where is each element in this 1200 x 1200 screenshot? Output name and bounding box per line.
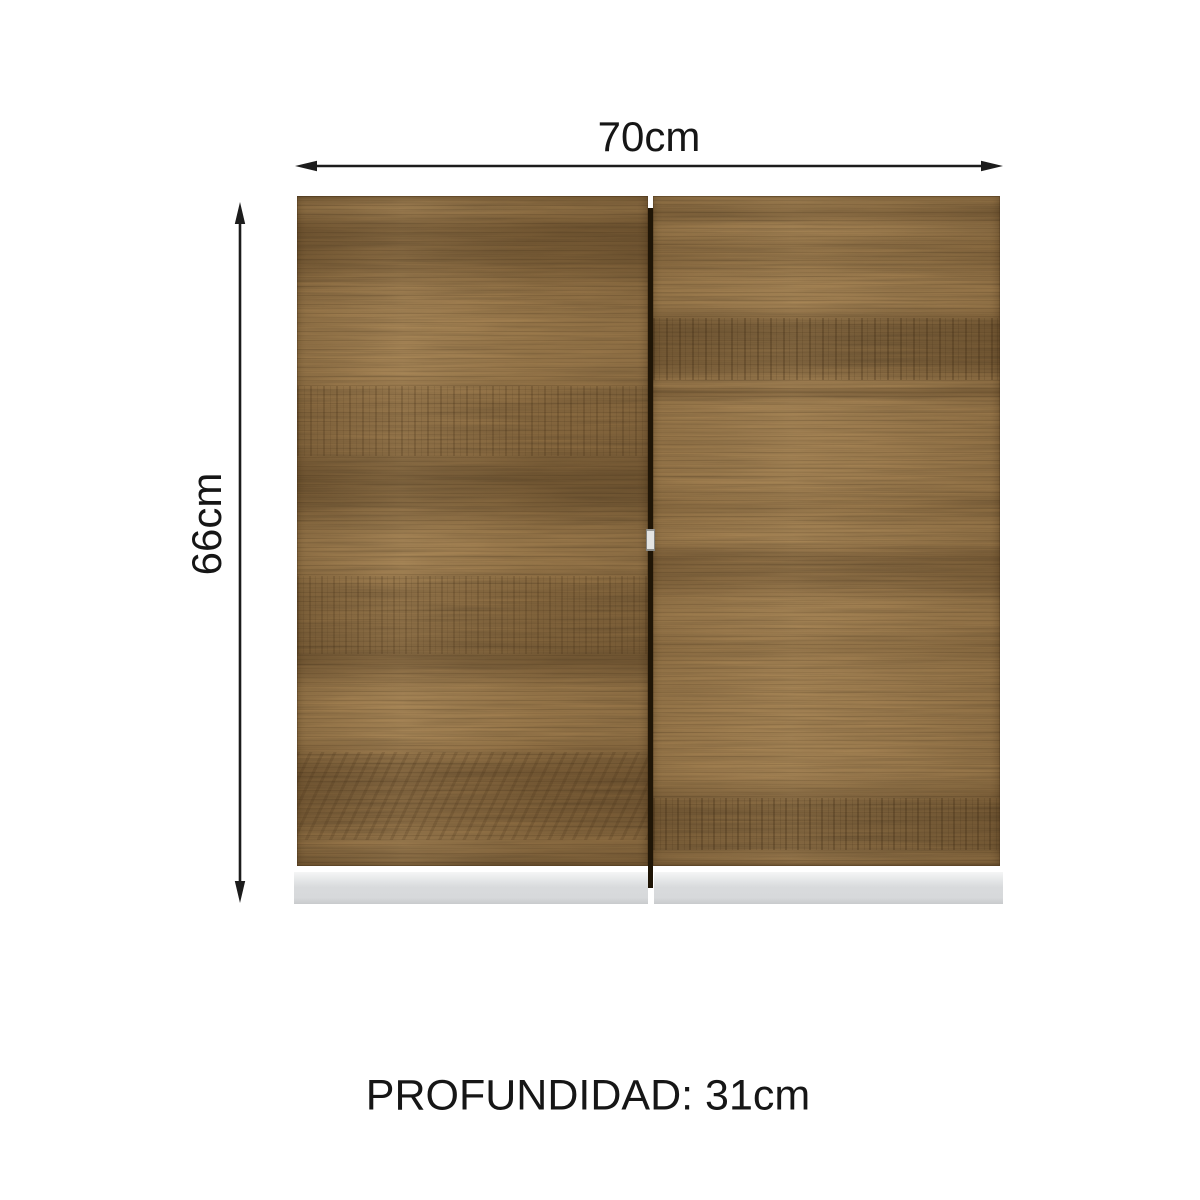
cabinet-front-view xyxy=(0,0,1200,1200)
product-dimension-diagram: 70cm 66cm PROFUNDIDAD: 31cm xyxy=(0,0,1200,1200)
wood-grain-texture xyxy=(653,196,1000,866)
cabinet-door-left xyxy=(297,196,648,866)
cabinet-door-right xyxy=(653,196,1000,866)
door-hinge-detail xyxy=(646,529,655,551)
wood-grain-texture xyxy=(297,196,648,866)
cabinet-base-right xyxy=(654,872,1003,904)
cabinet-base-left xyxy=(294,872,648,904)
depth-dimension-label: PROFUNDIDAD: 31cm xyxy=(366,1072,810,1119)
